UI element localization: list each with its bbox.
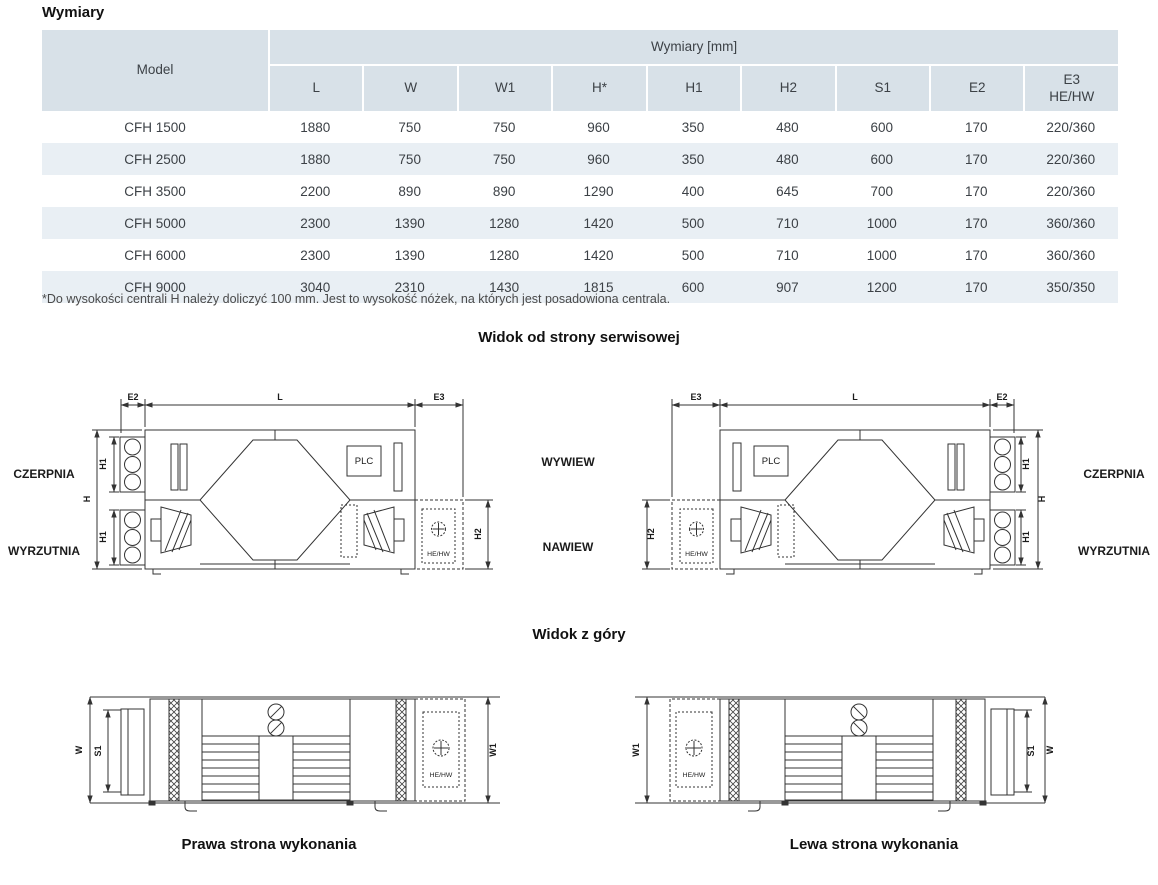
model-cell: CFH 6000: [42, 239, 268, 271]
value-cell: 600: [835, 111, 929, 143]
column-header-e3: E3 HE/HW: [1023, 64, 1118, 111]
value-cell: 1280: [457, 239, 551, 271]
dim-label-h1-top: H1: [98, 458, 108, 470]
model-cell: CFH 5000: [42, 207, 268, 239]
section-heading-top-view: Widok z góry: [0, 626, 1158, 643]
table-row: CFH 15001880750750960350480600170220/360: [42, 111, 1118, 143]
column-header-s1: S1: [835, 64, 929, 111]
value-cell: 1880: [268, 111, 362, 143]
dim-label-e3: E3: [433, 392, 444, 402]
label-wywiew: WYWIEW: [516, 455, 620, 469]
value-cell: 2200: [268, 175, 362, 207]
value-cell: 220/360: [1023, 143, 1118, 175]
value-cell: 960: [551, 111, 645, 143]
value-cell: 480: [740, 143, 834, 175]
value-cell: 750: [457, 111, 551, 143]
column-header-h1: H1: [646, 64, 740, 111]
dim-label-h2: H2: [473, 528, 483, 540]
value-cell: 710: [740, 239, 834, 271]
column-header-w1: W1: [457, 64, 551, 111]
value-cell: 170: [929, 271, 1023, 303]
value-cell: 350/350: [1023, 271, 1118, 303]
value-cell: 700: [835, 175, 929, 207]
value-cell: 1000: [835, 207, 929, 239]
dim-label-h1-top: H1: [1021, 458, 1031, 470]
value-cell: 220/360: [1023, 175, 1118, 207]
dim-label-w1: W1: [488, 743, 498, 757]
value-cell: 1280: [457, 207, 551, 239]
column-group-header: Wymiary [mm]: [268, 30, 1118, 64]
value-cell: 750: [362, 111, 456, 143]
column-header-e2: E2: [929, 64, 1023, 111]
dim-label-w1: W1: [631, 743, 641, 757]
value-cell: 360/360: [1023, 207, 1118, 239]
dim-label-s1: S1: [93, 745, 103, 756]
value-cell: 350: [646, 111, 740, 143]
dim-label-l: L: [852, 392, 858, 402]
value-cell: 1000: [835, 239, 929, 271]
value-cell: 220/360: [1023, 111, 1118, 143]
table-row: CFH 25001880750750960350480600170220/360: [42, 143, 1118, 175]
datasheet-page: Wymiary Model Wymiary [mm] LWW1H*H1H2S1E…: [0, 0, 1158, 885]
table-row: CFH 600023001390128014205007101000170360…: [42, 239, 1118, 271]
value-cell: 360/360: [1023, 239, 1118, 271]
value-cell: 480: [740, 111, 834, 143]
dim-label-s1: S1: [1026, 745, 1036, 756]
model-cell: CFH 3500: [42, 175, 268, 207]
value-cell: 710: [740, 207, 834, 239]
plc-box-label: PLC: [355, 456, 374, 467]
value-cell: 1420: [551, 239, 645, 271]
section-heading-service-view: Widok od strony serwisowej: [0, 329, 1158, 346]
diagram-service-view-left-variant: E3 L E2 H H1 H1 H2 PLC HE/HW: [635, 387, 1050, 602]
value-cell: 500: [646, 239, 740, 271]
diagram-top-view-right-variant: W S1 W1 HE/HW: [75, 685, 510, 835]
value-cell: 1390: [362, 239, 456, 271]
dim-label-w: W: [74, 745, 84, 754]
he-hw-label: HE/HW: [683, 772, 706, 779]
diagram-top-view-left-variant: W1 HE/HW S1 W: [625, 685, 1060, 835]
dim-label-e2: E2: [996, 392, 1007, 402]
column-header-h: H*: [551, 64, 645, 111]
caption-left-side-execution: Lewa strona wykonania: [724, 836, 1024, 853]
label-nawiew: NAWIEW: [516, 540, 620, 554]
dim-label-e2: E2: [127, 392, 138, 402]
model-cell: CFH 2500: [42, 143, 268, 175]
plc-box-label: PLC: [762, 456, 781, 467]
value-cell: 890: [362, 175, 456, 207]
value-cell: 750: [457, 143, 551, 175]
column-header-model: Model: [42, 30, 268, 111]
label-czerpnia-right: CZERPNIA: [1062, 467, 1158, 481]
value-cell: 600: [835, 143, 929, 175]
value-cell: 500: [646, 207, 740, 239]
value-cell: 170: [929, 143, 1023, 175]
value-cell: 170: [929, 239, 1023, 271]
dim-label-h1-bottom: H1: [98, 531, 108, 543]
dim-label-h: H: [82, 496, 92, 503]
dim-label-l: L: [277, 392, 283, 402]
he-hw-label: HE/HW: [430, 772, 453, 779]
value-cell: 645: [740, 175, 834, 207]
he-hw-label: HE/HW: [427, 551, 450, 558]
table-row: CFH 500023001390128014205007101000170360…: [42, 207, 1118, 239]
value-cell: 170: [929, 175, 1023, 207]
column-header-l: L: [268, 64, 362, 111]
dim-label-h: H: [1037, 496, 1047, 503]
label-wyrzutnia-right: WYRZUTNIA: [1062, 544, 1158, 558]
value-cell: 960: [551, 143, 645, 175]
label-czerpnia-left: CZERPNIA: [0, 467, 96, 481]
value-cell: 750: [362, 143, 456, 175]
dim-label-e3: E3: [690, 392, 701, 402]
value-cell: 350: [646, 143, 740, 175]
dimensions-table: Model Wymiary [mm] LWW1H*H1H2S1E2E3 HE/H…: [42, 30, 1118, 303]
value-cell: 890: [457, 175, 551, 207]
dim-label-w: W: [1045, 745, 1055, 754]
dim-label-h2: H2: [646, 528, 656, 540]
value-cell: 1880: [268, 143, 362, 175]
value-cell: 400: [646, 175, 740, 207]
column-header-w: W: [362, 64, 456, 111]
value-cell: 2300: [268, 207, 362, 239]
diagram-service-view-right-variant: E2 L E3 H H1 H1 H2 PLC HE/HW: [85, 387, 500, 602]
label-wyrzutnia-left: WYRZUTNIA: [0, 544, 96, 558]
column-header-h2: H2: [740, 64, 834, 111]
dim-label-h1-bottom: H1: [1021, 531, 1031, 543]
value-cell: 1390: [362, 207, 456, 239]
page-title: Wymiary: [42, 4, 104, 21]
model-cell: CFH 1500: [42, 111, 268, 143]
caption-right-side-execution: Prawa strona wykonania: [119, 836, 419, 853]
table-footnote: *Do wysokości centrali H należy doliczyć…: [42, 292, 942, 306]
value-cell: 1290: [551, 175, 645, 207]
value-cell: 2300: [268, 239, 362, 271]
he-hw-label: HE/HW: [685, 551, 708, 558]
table-row: CFH 350022008908901290400645700170220/36…: [42, 175, 1118, 207]
value-cell: 170: [929, 207, 1023, 239]
value-cell: 1420: [551, 207, 645, 239]
value-cell: 170: [929, 111, 1023, 143]
